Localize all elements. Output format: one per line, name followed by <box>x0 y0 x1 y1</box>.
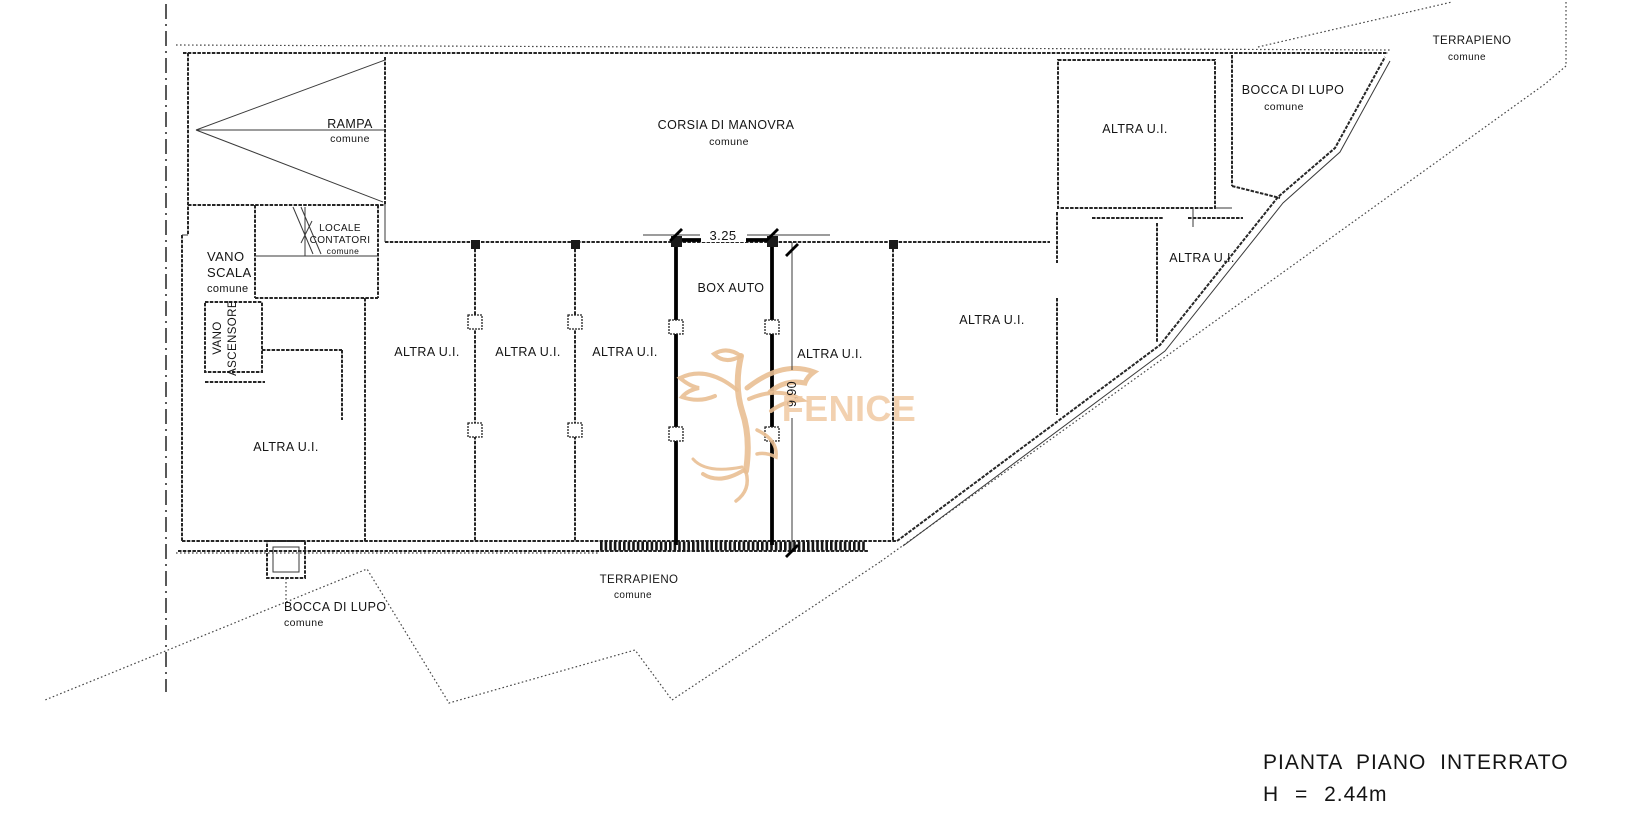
watermark-text: FENICE <box>782 388 916 429</box>
phoenix-stroke <box>714 350 741 360</box>
label-vano-ascensore: VANO <box>212 321 224 354</box>
phoenix-stroke <box>738 356 748 471</box>
pillar <box>765 320 779 334</box>
label-terrapieno-bottom-comune: comune <box>614 590 652 601</box>
label-bocca-di-lupo-left-comune: comune <box>284 617 324 629</box>
pillar <box>568 423 582 437</box>
label-vano-scala: VANO <box>207 249 244 264</box>
terrapieno-zigzag <box>45 562 880 703</box>
room-labels: RAMPAcomuneCORSIA DI MANOVRAcomuneVANOSC… <box>207 35 1569 806</box>
phoenix-stroke <box>703 470 744 479</box>
pillar <box>669 320 683 334</box>
phoenix-stroke <box>693 459 742 469</box>
label-box-auto: BOX AUTO <box>698 281 765 295</box>
label-terrapieno-right: TERRAPIENO <box>1433 35 1512 47</box>
label-vano-ascensore: ASCENSORE <box>227 300 239 376</box>
site-topright-diagonal <box>1258 2 1452 47</box>
bocca-right-south-wall <box>1232 186 1280 198</box>
label-bocca-di-lupo-right-comune: comune <box>1264 101 1304 113</box>
pillar <box>568 315 582 329</box>
title-line-2: H = 2.44m <box>1263 783 1387 806</box>
label-bocca-di-lupo-left: BOCCA DI LUPO <box>284 600 386 614</box>
label-locale-contatori-comune: comune <box>327 246 360 256</box>
label-locale-contatori: LOCALE <box>319 223 361 234</box>
pillar <box>669 427 683 441</box>
wall-cap <box>471 240 480 249</box>
pillar <box>468 315 482 329</box>
label-altra-ui-stall-5: ALTRA U.I. <box>959 313 1025 327</box>
floor-plan-page: RAMPAcomuneCORSIA DI MANOVRAcomuneVANOSC… <box>0 0 1645 833</box>
label-altra-ui-right: ALTRA U.I. <box>1169 251 1235 265</box>
label-altra-ui-left: ALTRA U.I. <box>253 440 319 454</box>
label-vano-scala-comune: comune <box>207 283 249 295</box>
label-bocca-di-lupo-right: BOCCA DI LUPO <box>1242 83 1344 97</box>
pillar <box>468 423 482 437</box>
wall-cap <box>889 240 898 249</box>
label-altra-ui-stall-2: ALTRA U.I. <box>495 345 561 359</box>
label-locale-contatori: CONTATORI <box>310 235 371 246</box>
phoenix-stroke <box>736 472 747 501</box>
phoenix-stroke <box>680 374 737 400</box>
label-corsia-di-manovra: CORSIA DI MANOVRA <box>658 118 795 132</box>
label-rampa: RAMPA <box>327 117 373 131</box>
stair-break-slash-2 <box>301 207 321 254</box>
wall-cap <box>571 240 580 249</box>
label-altra-ui-stall-3: ALTRA U.I. <box>592 345 658 359</box>
dim-box-width-value: 3.25 <box>710 228 737 243</box>
label-altra-ui-stall-4: ALTRA U.I. <box>797 347 863 361</box>
label-rampa-comune: comune <box>330 133 370 145</box>
label-terrapieno-right-comune: comune <box>1448 52 1486 63</box>
label-vano-scala: SCALA <box>207 265 252 280</box>
stair-break-slash-1 <box>293 207 313 254</box>
floor-plan-canvas: RAMPAcomuneCORSIA DI MANOVRAcomuneVANOSC… <box>0 0 1645 833</box>
label-corsia-comune: comune <box>709 136 749 148</box>
label-altra-ui-stall-1: ALTRA U.I. <box>394 345 460 359</box>
label-altra-ui-topright: ALTRA U.I. <box>1102 122 1168 136</box>
site-top-line <box>176 45 1390 50</box>
title-line-1: PIANTA PIANO INTERRATO <box>1263 751 1569 774</box>
label-terrapieno-bottom: TERRAPIENO <box>600 574 679 586</box>
